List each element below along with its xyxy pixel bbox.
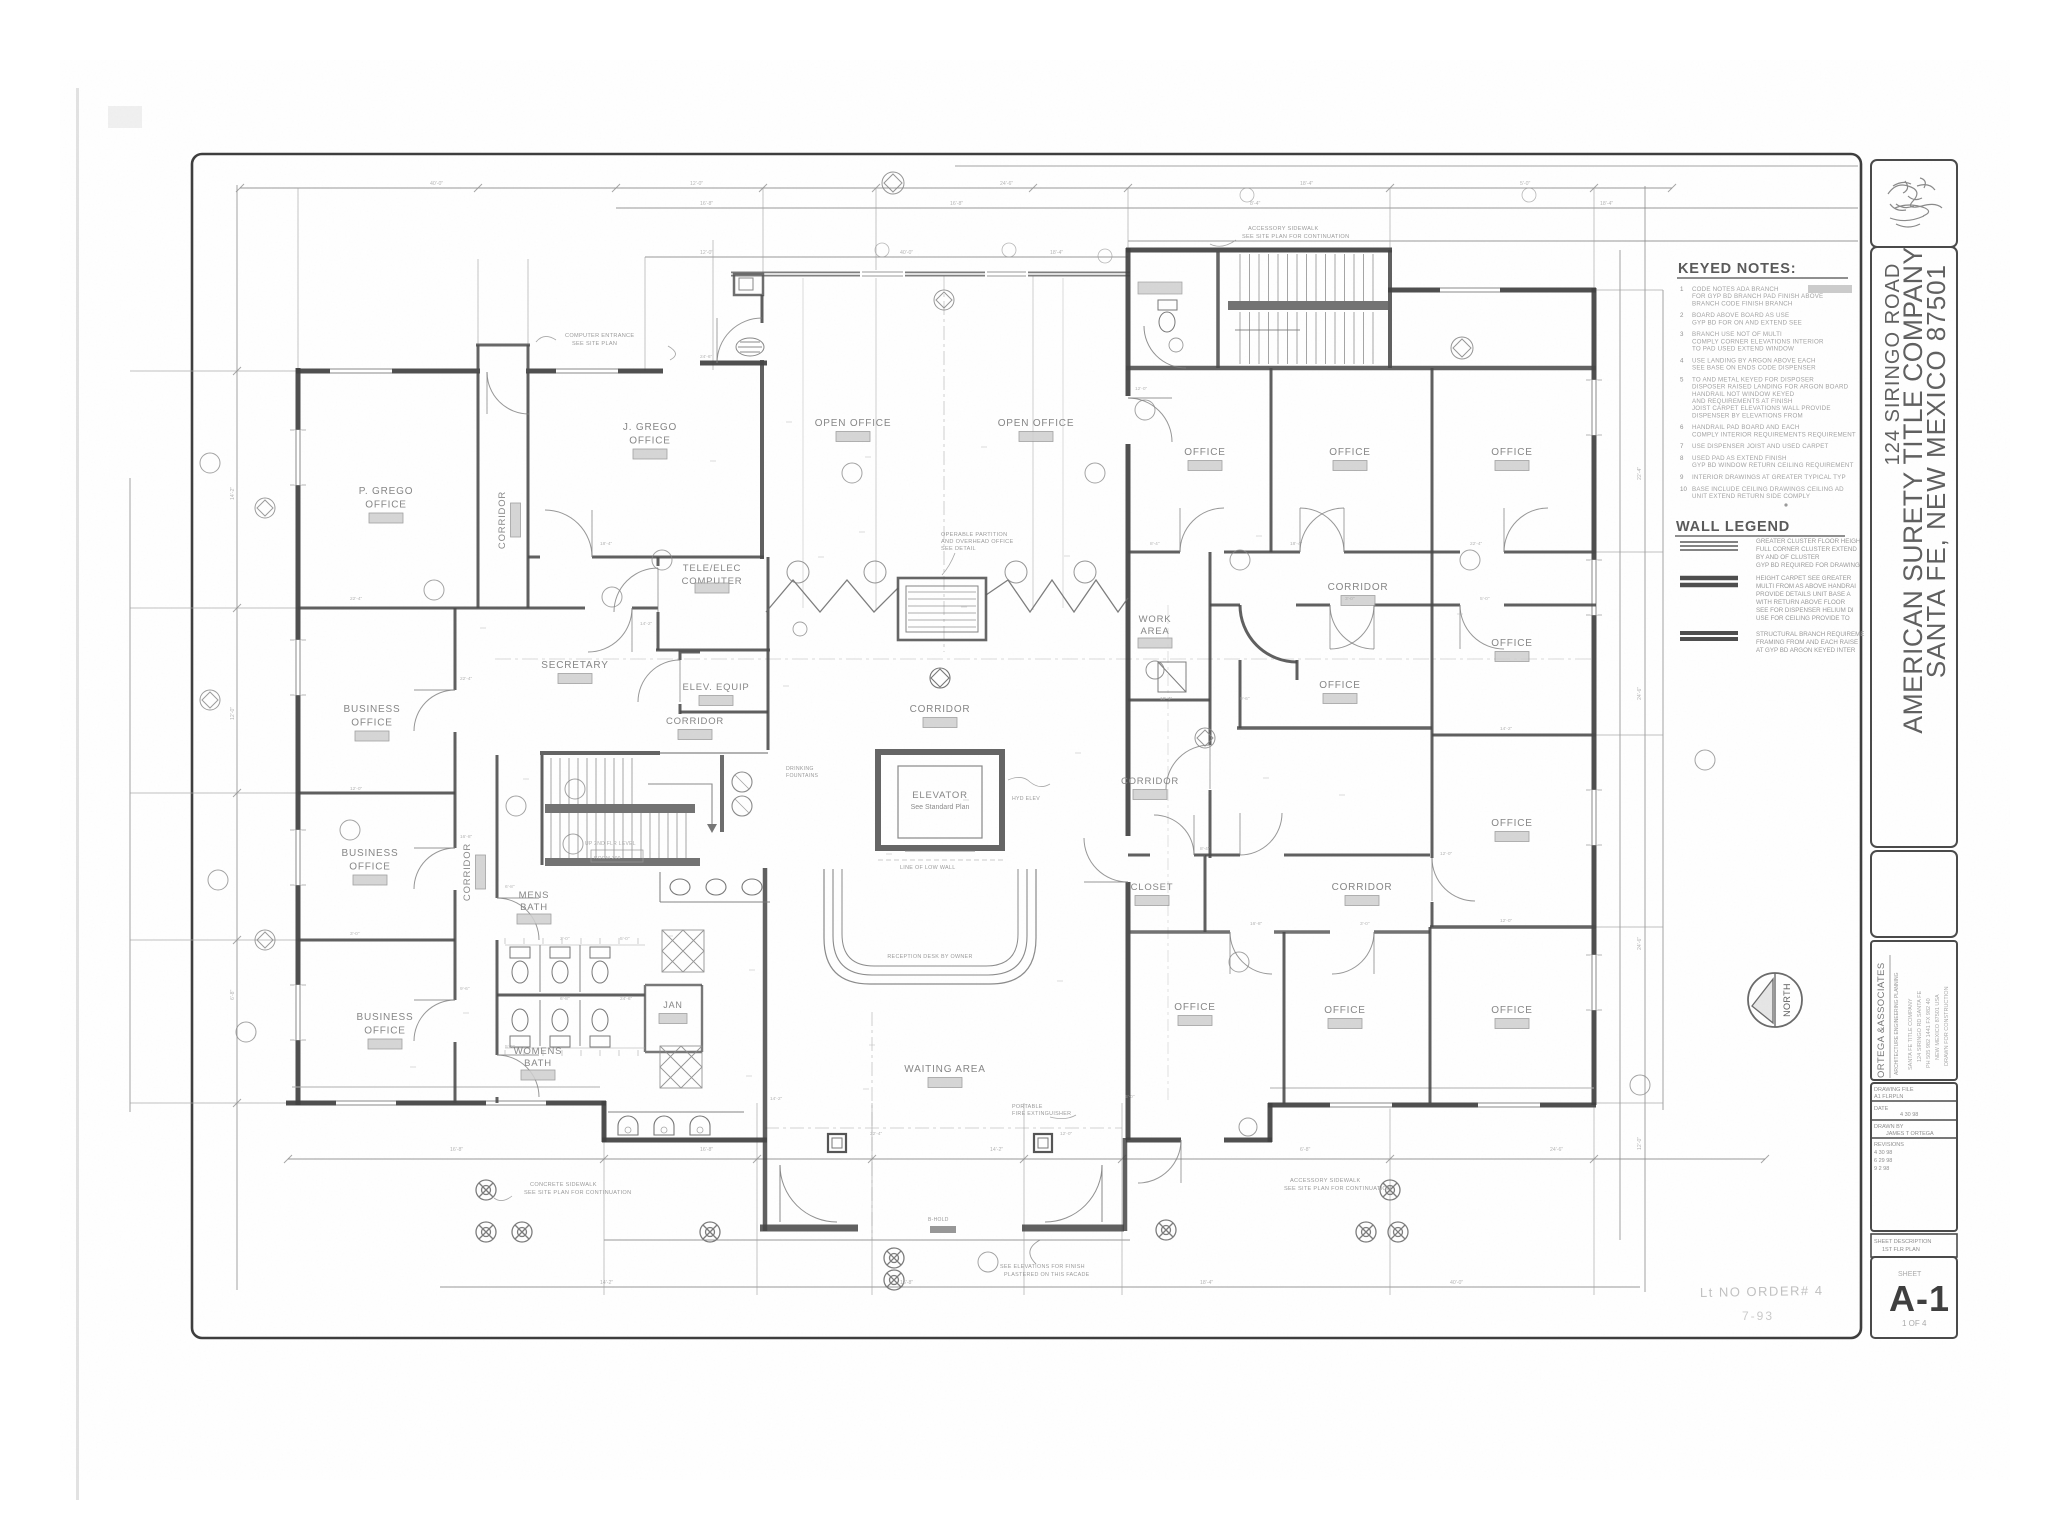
svg-text:1 OF 4: 1 OF 4 <box>1902 1319 1927 1328</box>
svg-text:12'-0": 12'-0" <box>1135 386 1148 392</box>
svg-text:124 SIRINGO RD SANTA FE: 124 SIRINGO RD SANTA FE <box>1917 991 1923 1062</box>
svg-text:4 30 98: 4 30 98 <box>1900 1112 1918 1118</box>
svg-text:TELE/ELEC: TELE/ELEC <box>683 563 741 574</box>
svg-text:DISPENSER BY ELEVATIONS FROM: DISPENSER BY ELEVATIONS FROM <box>1692 412 1803 419</box>
svg-text:BRANCH USE NOT OF MULTI: BRANCH USE NOT OF MULTI <box>1692 331 1782 338</box>
svg-text:Lt NO ORDER# 4: Lt NO ORDER# 4 <box>1700 1283 1824 1300</box>
svg-text:BUSINESS: BUSINESS <box>344 704 401 715</box>
svg-text:SEE SITE PLAN FOR CONTINUATION: SEE SITE PLAN FOR CONTINUATION <box>1242 234 1349 240</box>
svg-text:18'-4": 18'-4" <box>1600 201 1613 207</box>
svg-text:PLASTERED ON THIS FACADE: PLASTERED ON THIS FACADE <box>1004 1272 1090 1278</box>
svg-text:FIRE EXTINGUISHER: FIRE EXTINGUISHER <box>1012 1111 1071 1117</box>
svg-text:HANDRAIL PAD BOARD AND EACH: HANDRAIL PAD BOARD AND EACH <box>1692 424 1800 431</box>
svg-text:A-1: A-1 <box>1889 1278 1950 1319</box>
svg-text:FRAMING FROM AND EACH RAISE: FRAMING FROM AND EACH RAISE <box>1756 639 1858 646</box>
svg-text:BUSINESS: BUSINESS <box>357 1012 414 1023</box>
svg-text:14'-2": 14'-2" <box>770 1096 783 1102</box>
svg-text:7-93: 7-93 <box>1742 1309 1774 1323</box>
svg-text:OFFICE: OFFICE <box>1319 680 1360 691</box>
svg-text:COMPLY CORNER ELEVATIONS INTER: COMPLY CORNER ELEVATIONS INTERIOR <box>1692 338 1824 345</box>
svg-text:12'-0": 12'-0" <box>690 181 703 187</box>
svg-text:OFFICE: OFFICE <box>349 862 390 873</box>
svg-text:JAMES T ORTEGA: JAMES T ORTEGA <box>1886 1131 1934 1137</box>
svg-text:PORTABLE: PORTABLE <box>1012 1104 1043 1110</box>
svg-text:24'-6": 24'-6" <box>700 354 713 360</box>
svg-text:OFFICE: OFFICE <box>365 500 406 511</box>
svg-text:22'-4": 22'-4" <box>1470 541 1483 547</box>
svg-text:ACCESSORY SIDEWALK: ACCESSORY SIDEWALK <box>1290 1178 1361 1184</box>
svg-text:DRINKING: DRINKING <box>786 766 814 772</box>
svg-text:OFFICE: OFFICE <box>1184 447 1225 458</box>
svg-text:OFFICE: OFFICE <box>1174 1002 1215 1013</box>
svg-text:OFFICE: OFFICE <box>1491 638 1532 649</box>
svg-text:USE FOR CEILING PROVIDE TO: USE FOR CEILING PROVIDE TO <box>1756 615 1850 622</box>
svg-text:STRUCTURAL BRANCH REQUIREME: STRUCTURAL BRANCH REQUIREME <box>1756 631 1864 638</box>
svg-text:CORRIDOR: CORRIDOR <box>1121 776 1179 787</box>
svg-text:SHEET DESCRIPTION: SHEET DESCRIPTION <box>1874 1239 1931 1245</box>
svg-text:CORRIDOR: CORRIDOR <box>1332 882 1393 893</box>
svg-text:ELEVATOR: ELEVATOR <box>912 790 968 801</box>
svg-text:40'-0": 40'-0" <box>900 250 913 256</box>
svg-text:BASE INCLUDE CEILING DRAWINGS: BASE INCLUDE CEILING DRAWINGS CEILING AD <box>1692 486 1844 493</box>
svg-text:FOUNTAINS: FOUNTAINS <box>786 773 819 779</box>
svg-text:SANTA FE TITLE COMPANY: SANTA FE TITLE COMPANY <box>1908 998 1914 1070</box>
svg-text:12'-0": 12'-0" <box>230 707 236 720</box>
svg-text:CORRIDOR: CORRIDOR <box>910 704 971 715</box>
svg-text:OFFICE: OFFICE <box>1329 447 1370 458</box>
svg-text:5: 5 <box>1680 376 1684 383</box>
svg-text:WORK: WORK <box>1139 614 1172 625</box>
svg-text:FULL CORNER CLUSTER EXTEND: FULL CORNER CLUSTER EXTEND <box>1756 546 1857 553</box>
svg-text:OPEN OFFICE: OPEN OFFICE <box>998 418 1075 429</box>
svg-text:SEE SITE PLAN FOR CONTINUATION: SEE SITE PLAN FOR CONTINUATION <box>1284 1186 1391 1192</box>
svg-text:6: 6 <box>1680 424 1684 431</box>
svg-text:8'-4": 8'-4" <box>1200 846 1210 852</box>
svg-text:CORRIDOR: CORRIDOR <box>462 843 473 901</box>
svg-text:WALL LEGEND: WALL LEGEND <box>1676 519 1790 535</box>
svg-text:A1 FLRPLN: A1 FLRPLN <box>1874 1094 1903 1100</box>
svg-text:22'-4": 22'-4" <box>1637 467 1643 480</box>
svg-text:18'-4": 18'-4" <box>1200 1280 1213 1286</box>
svg-text:12'-0": 12'-0" <box>350 786 363 792</box>
svg-text:14'-2": 14'-2" <box>640 621 653 627</box>
svg-text:LINE OF LOW WALL: LINE OF LOW WALL <box>900 865 956 871</box>
svg-text:16'-8": 16'-8" <box>450 1147 463 1153</box>
svg-text:SEE SITE PLAN FOR CONTINUATION: SEE SITE PLAN FOR CONTINUATION <box>524 1190 631 1196</box>
svg-text:6'-8": 6'-8" <box>560 996 570 1002</box>
svg-text:OFFICE: OFFICE <box>1491 1005 1532 1016</box>
svg-text:ORTEGA &ASSOCIATES: ORTEGA &ASSOCIATES <box>1876 962 1887 1078</box>
svg-text:4 30 98: 4 30 98 <box>1874 1150 1892 1156</box>
svg-text:AT GYP BD ARGON KEYED INTER: AT GYP BD ARGON KEYED INTER <box>1756 647 1856 654</box>
svg-text:AREA: AREA <box>1140 626 1169 637</box>
svg-text:16'-8": 16'-8" <box>700 201 713 207</box>
svg-text:3'-0": 3'-0" <box>1360 921 1370 927</box>
svg-text:SEE FOR DISPENSER HELIUM DI: SEE FOR DISPENSER HELIUM DI <box>1756 607 1854 614</box>
svg-text:BUSINESS: BUSINESS <box>342 848 399 859</box>
svg-text:14'-2": 14'-2" <box>230 487 236 500</box>
svg-text:24'-6": 24'-6" <box>1550 1147 1563 1153</box>
svg-text:HANDRAIL NOT WINDOW KEYED: HANDRAIL NOT WINDOW KEYED <box>1692 391 1795 398</box>
svg-text:24'-6": 24'-6" <box>1637 937 1643 950</box>
svg-text:PROVIDE DETAILS UNIT BASE A: PROVIDE DETAILS UNIT BASE A <box>1756 591 1852 598</box>
svg-text:ROOM 200: ROOM 200 <box>594 855 621 861</box>
svg-text:CONCRETE SIDEWALK: CONCRETE SIDEWALK <box>530 1182 597 1188</box>
svg-text:COMPUTER ENTRANCE: COMPUTER ENTRANCE <box>565 333 634 339</box>
svg-text:JOIST CARPET ELEVATIONS WALL P: JOIST CARPET ELEVATIONS WALL PROVIDE <box>1692 405 1831 412</box>
svg-text:3'-0": 3'-0" <box>1345 596 1355 602</box>
svg-text:18'-4": 18'-4" <box>1160 696 1173 702</box>
svg-text:KEYED NOTES:: KEYED NOTES: <box>1678 261 1796 277</box>
svg-text:40'-0": 40'-0" <box>1450 1280 1463 1286</box>
svg-text:BATH: BATH <box>524 1058 552 1069</box>
svg-text:12'-0": 12'-0" <box>1637 1137 1643 1150</box>
svg-text:P. GREGO: P. GREGO <box>359 486 414 497</box>
svg-text:3: 3 <box>1680 331 1684 338</box>
svg-text:INTERIOR DRAWINGS AT GREATER T: INTERIOR DRAWINGS AT GREATER TYPICAL TYP <box>1692 474 1846 481</box>
svg-text:18'-4": 18'-4" <box>600 541 613 547</box>
svg-text:BY AND OF CLUSTER: BY AND OF CLUSTER <box>1756 554 1820 561</box>
svg-text:5'-0": 5'-0" <box>1480 596 1490 602</box>
svg-text:16'-8": 16'-8" <box>900 1280 913 1286</box>
svg-text:10: 10 <box>1680 486 1687 493</box>
svg-text:DISPOSER RAISED LANDING FOR AR: DISPOSER RAISED LANDING FOR ARGON BOARD <box>1692 384 1849 391</box>
svg-text:3'-0": 3'-0" <box>560 936 570 942</box>
svg-text:24'-6": 24'-6" <box>1000 181 1013 187</box>
svg-text:16'-8": 16'-8" <box>1250 921 1263 927</box>
svg-text:12'-0": 12'-0" <box>1500 918 1513 924</box>
svg-text:DATE: DATE <box>1874 1106 1889 1112</box>
svg-text:J. GREGO: J. GREGO <box>623 422 677 433</box>
svg-text:JAN: JAN <box>663 1000 682 1010</box>
svg-text:PH 505 982 1441 FX 982 40: PH 505 982 1441 FX 982 40 <box>1926 998 1932 1068</box>
svg-text:8: 8 <box>1680 455 1684 462</box>
svg-text:1ST FLR PLAN: 1ST FLR PLAN <box>1882 1247 1920 1253</box>
svg-text:22'-4": 22'-4" <box>350 596 363 602</box>
svg-text:CORRIDOR: CORRIDOR <box>497 491 508 549</box>
svg-text:6'-8": 6'-8" <box>505 884 515 890</box>
svg-text:USED PAD AS EXTEND FINISH: USED PAD AS EXTEND FINISH <box>1692 455 1787 462</box>
svg-text:TO AND METAL KEYED FOR DISPOSE: TO AND METAL KEYED FOR DISPOSER <box>1692 376 1814 383</box>
svg-text:GYP BD FOR ON AND EXTEND SEE: GYP BD FOR ON AND EXTEND SEE <box>1692 319 1802 326</box>
svg-text:8'-4": 8'-4" <box>1250 201 1260 207</box>
svg-text:SEE SITE PLAN: SEE SITE PLAN <box>572 341 617 347</box>
svg-text:SANTA FE, NEW MEXICO 87501: SANTA FE, NEW MEXICO 87501 <box>1921 264 1951 678</box>
svg-text:OFFICE: OFFICE <box>364 1026 405 1037</box>
svg-text:CODE NOTES ADA BRANCH: CODE NOTES ADA BRANCH <box>1692 286 1779 293</box>
svg-text:REVISIONS: REVISIONS <box>1874 1142 1904 1148</box>
svg-text:HYD ELEV: HYD ELEV <box>1012 796 1040 802</box>
svg-text:OFFICE: OFFICE <box>1491 447 1532 458</box>
svg-text:18'-4": 18'-4" <box>1290 541 1303 547</box>
svg-text:14'-2": 14'-2" <box>990 1147 1003 1153</box>
svg-text:9'-6": 9'-6" <box>1240 696 1250 702</box>
svg-text:6'-8": 6'-8" <box>230 990 236 1000</box>
svg-text:GYP BD REQUIRED FOR DRAWING: GYP BD REQUIRED FOR DRAWING <box>1756 562 1860 569</box>
svg-text:SHEET: SHEET <box>1898 1271 1922 1278</box>
svg-text:14'-2": 14'-2" <box>1500 726 1513 732</box>
svg-text:WAITING AREA: WAITING AREA <box>904 1064 985 1075</box>
svg-text:TO PAD USED EXTEND WINDOW: TO PAD USED EXTEND WINDOW <box>1692 346 1794 353</box>
svg-text:24'-6": 24'-6" <box>620 996 633 1002</box>
svg-text:9'-6": 9'-6" <box>460 986 470 992</box>
svg-text:16'-8": 16'-8" <box>460 834 473 840</box>
svg-text:COMPLY INTERIOR REQUIREMENTS R: COMPLY INTERIOR REQUIREMENTS REQUIREMENT <box>1692 431 1856 438</box>
svg-text:12'-0": 12'-0" <box>1060 1131 1073 1137</box>
svg-text:5'-0": 5'-0" <box>505 1044 515 1050</box>
svg-text:BATH: BATH <box>520 902 548 913</box>
svg-text:MULTI FROM AS ABOVE HANDRAI: MULTI FROM AS ABOVE HANDRAI <box>1756 583 1856 590</box>
svg-text:DRAWING FILE: DRAWING FILE <box>1874 1087 1914 1093</box>
svg-text:RECEPTION DESK BY OWNER: RECEPTION DESK BY OWNER <box>887 954 972 960</box>
svg-text:5'-0": 5'-0" <box>1125 1094 1135 1100</box>
svg-text:SEE ELEVATIONS FOR FINISH: SEE ELEVATIONS FOR FINISH <box>1000 1264 1085 1270</box>
svg-text:UP 2ND FLR LEVEL: UP 2ND FLR LEVEL <box>585 841 636 847</box>
svg-text:6'-8": 6'-8" <box>1300 1147 1310 1153</box>
svg-text:OPEN OFFICE: OPEN OFFICE <box>815 418 892 429</box>
svg-text:OPERABLE PARTITION: OPERABLE PARTITION <box>941 532 1007 538</box>
svg-text:12'-0": 12'-0" <box>1440 851 1453 857</box>
svg-text:9 2 98: 9 2 98 <box>1874 1166 1889 1172</box>
svg-text:OFFICE: OFFICE <box>1324 1005 1365 1016</box>
svg-text:ACCESSORY SIDEWALK: ACCESSORY SIDEWALK <box>1248 226 1319 232</box>
svg-text:DRAWN FOR CONSTRUCTION: DRAWN FOR CONSTRUCTION <box>1944 986 1950 1066</box>
svg-text:16'-8": 16'-8" <box>950 201 963 207</box>
svg-text:18'-4": 18'-4" <box>1050 250 1063 256</box>
svg-text:USE DISPENSER JOIST AND USED C: USE DISPENSER JOIST AND USED CARPET <box>1692 443 1829 450</box>
svg-text:AND REQUIREMENTS AT FINISH: AND REQUIREMENTS AT FINISH <box>1692 398 1793 405</box>
svg-text:WITH RETURN ABOVE FLOOR: WITH RETURN ABOVE FLOOR <box>1756 599 1846 606</box>
svg-text:14'-2": 14'-2" <box>600 1280 613 1286</box>
svg-text:See Standard Plan: See Standard Plan <box>911 804 970 811</box>
svg-text:22'-4": 22'-4" <box>870 1131 883 1137</box>
svg-text:BRANCH CODE FINISH BRANCH: BRANCH CODE FINISH BRANCH <box>1692 300 1793 307</box>
svg-text:OFFICE: OFFICE <box>1491 818 1532 829</box>
svg-text:ARCHITECTURE ENGINEERING PLANN: ARCHITECTURE ENGINEERING PLANNING <box>1894 972 1900 1075</box>
svg-text:OFFICE: OFFICE <box>351 718 392 729</box>
svg-text:OFFICE: OFFICE <box>629 436 670 447</box>
svg-text:40'-0": 40'-0" <box>430 181 443 187</box>
svg-text:B-HOLD: B-HOLD <box>928 1217 949 1223</box>
svg-text:NEW MEXICO 87501 USA: NEW MEXICO 87501 USA <box>1935 994 1941 1060</box>
svg-text:ELEV. EQUIP: ELEV. EQUIP <box>682 682 749 693</box>
svg-text:CLOSET: CLOSET <box>1131 882 1174 893</box>
svg-text:DRAWN BY: DRAWN BY <box>1874 1124 1904 1130</box>
svg-text:FOR GYP BD BRANCH PAD FINISH A: FOR GYP BD BRANCH PAD FINISH ABOVE <box>1692 293 1823 300</box>
svg-text:NORTH: NORTH <box>1782 983 1792 1017</box>
svg-text:1: 1 <box>1680 286 1684 293</box>
svg-text:SEE DETAIL: SEE DETAIL <box>941 546 976 552</box>
svg-text:SEE BASE ON ENDS CODE DISPENSE: SEE BASE ON ENDS CODE DISPENSER <box>1692 365 1816 372</box>
svg-text:MENS: MENS <box>519 890 550 901</box>
svg-text:9: 9 <box>1680 474 1684 481</box>
svg-text:CORRIDOR: CORRIDOR <box>666 716 724 727</box>
svg-text:16'-8": 16'-8" <box>700 1147 713 1153</box>
svg-text:GYP BD WINDOW RETURN CEILING R: GYP BD WINDOW RETURN CEILING REQUIREMENT <box>1692 462 1854 469</box>
svg-text:CORRIDOR: CORRIDOR <box>1328 582 1389 593</box>
svg-text:GREATER CLUSTER FLOOR HEIGH: GREATER CLUSTER FLOOR HEIGH <box>1756 538 1860 545</box>
svg-text:4: 4 <box>1680 357 1684 364</box>
svg-text:USE LANDING BY ARGON ABOVE EAC: USE LANDING BY ARGON ABOVE EACH <box>1692 357 1816 364</box>
svg-text:5'-0": 5'-0" <box>620 936 630 942</box>
svg-text:AND OVERHEAD OFFICE: AND OVERHEAD OFFICE <box>941 539 1014 545</box>
svg-text:SECRETARY: SECRETARY <box>541 660 608 671</box>
svg-text:22'-4": 22'-4" <box>460 676 473 682</box>
svg-text:8'-4": 8'-4" <box>1150 541 1160 547</box>
svg-text:WOMENS: WOMENS <box>514 1046 563 1057</box>
svg-text:HEIGHT CARPET SEE GREATER: HEIGHT CARPET SEE GREATER <box>1756 575 1852 582</box>
svg-text:BOARD ABOVE BOARD AS USE: BOARD ABOVE BOARD AS USE <box>1692 312 1789 319</box>
svg-text:6 29 98: 6 29 98 <box>1874 1158 1892 1164</box>
svg-text:UNIT EXTEND RETURN SIDE COMPLY: UNIT EXTEND RETURN SIDE COMPLY <box>1692 493 1810 500</box>
svg-text:12'-0": 12'-0" <box>700 250 713 256</box>
svg-text:2: 2 <box>1680 312 1684 319</box>
svg-text:24'-6": 24'-6" <box>1637 687 1643 700</box>
svg-text:3'-0": 3'-0" <box>350 931 360 937</box>
svg-text:18'-4": 18'-4" <box>1300 181 1313 187</box>
svg-text:7: 7 <box>1680 443 1684 450</box>
svg-text:5'-0": 5'-0" <box>1520 181 1530 187</box>
